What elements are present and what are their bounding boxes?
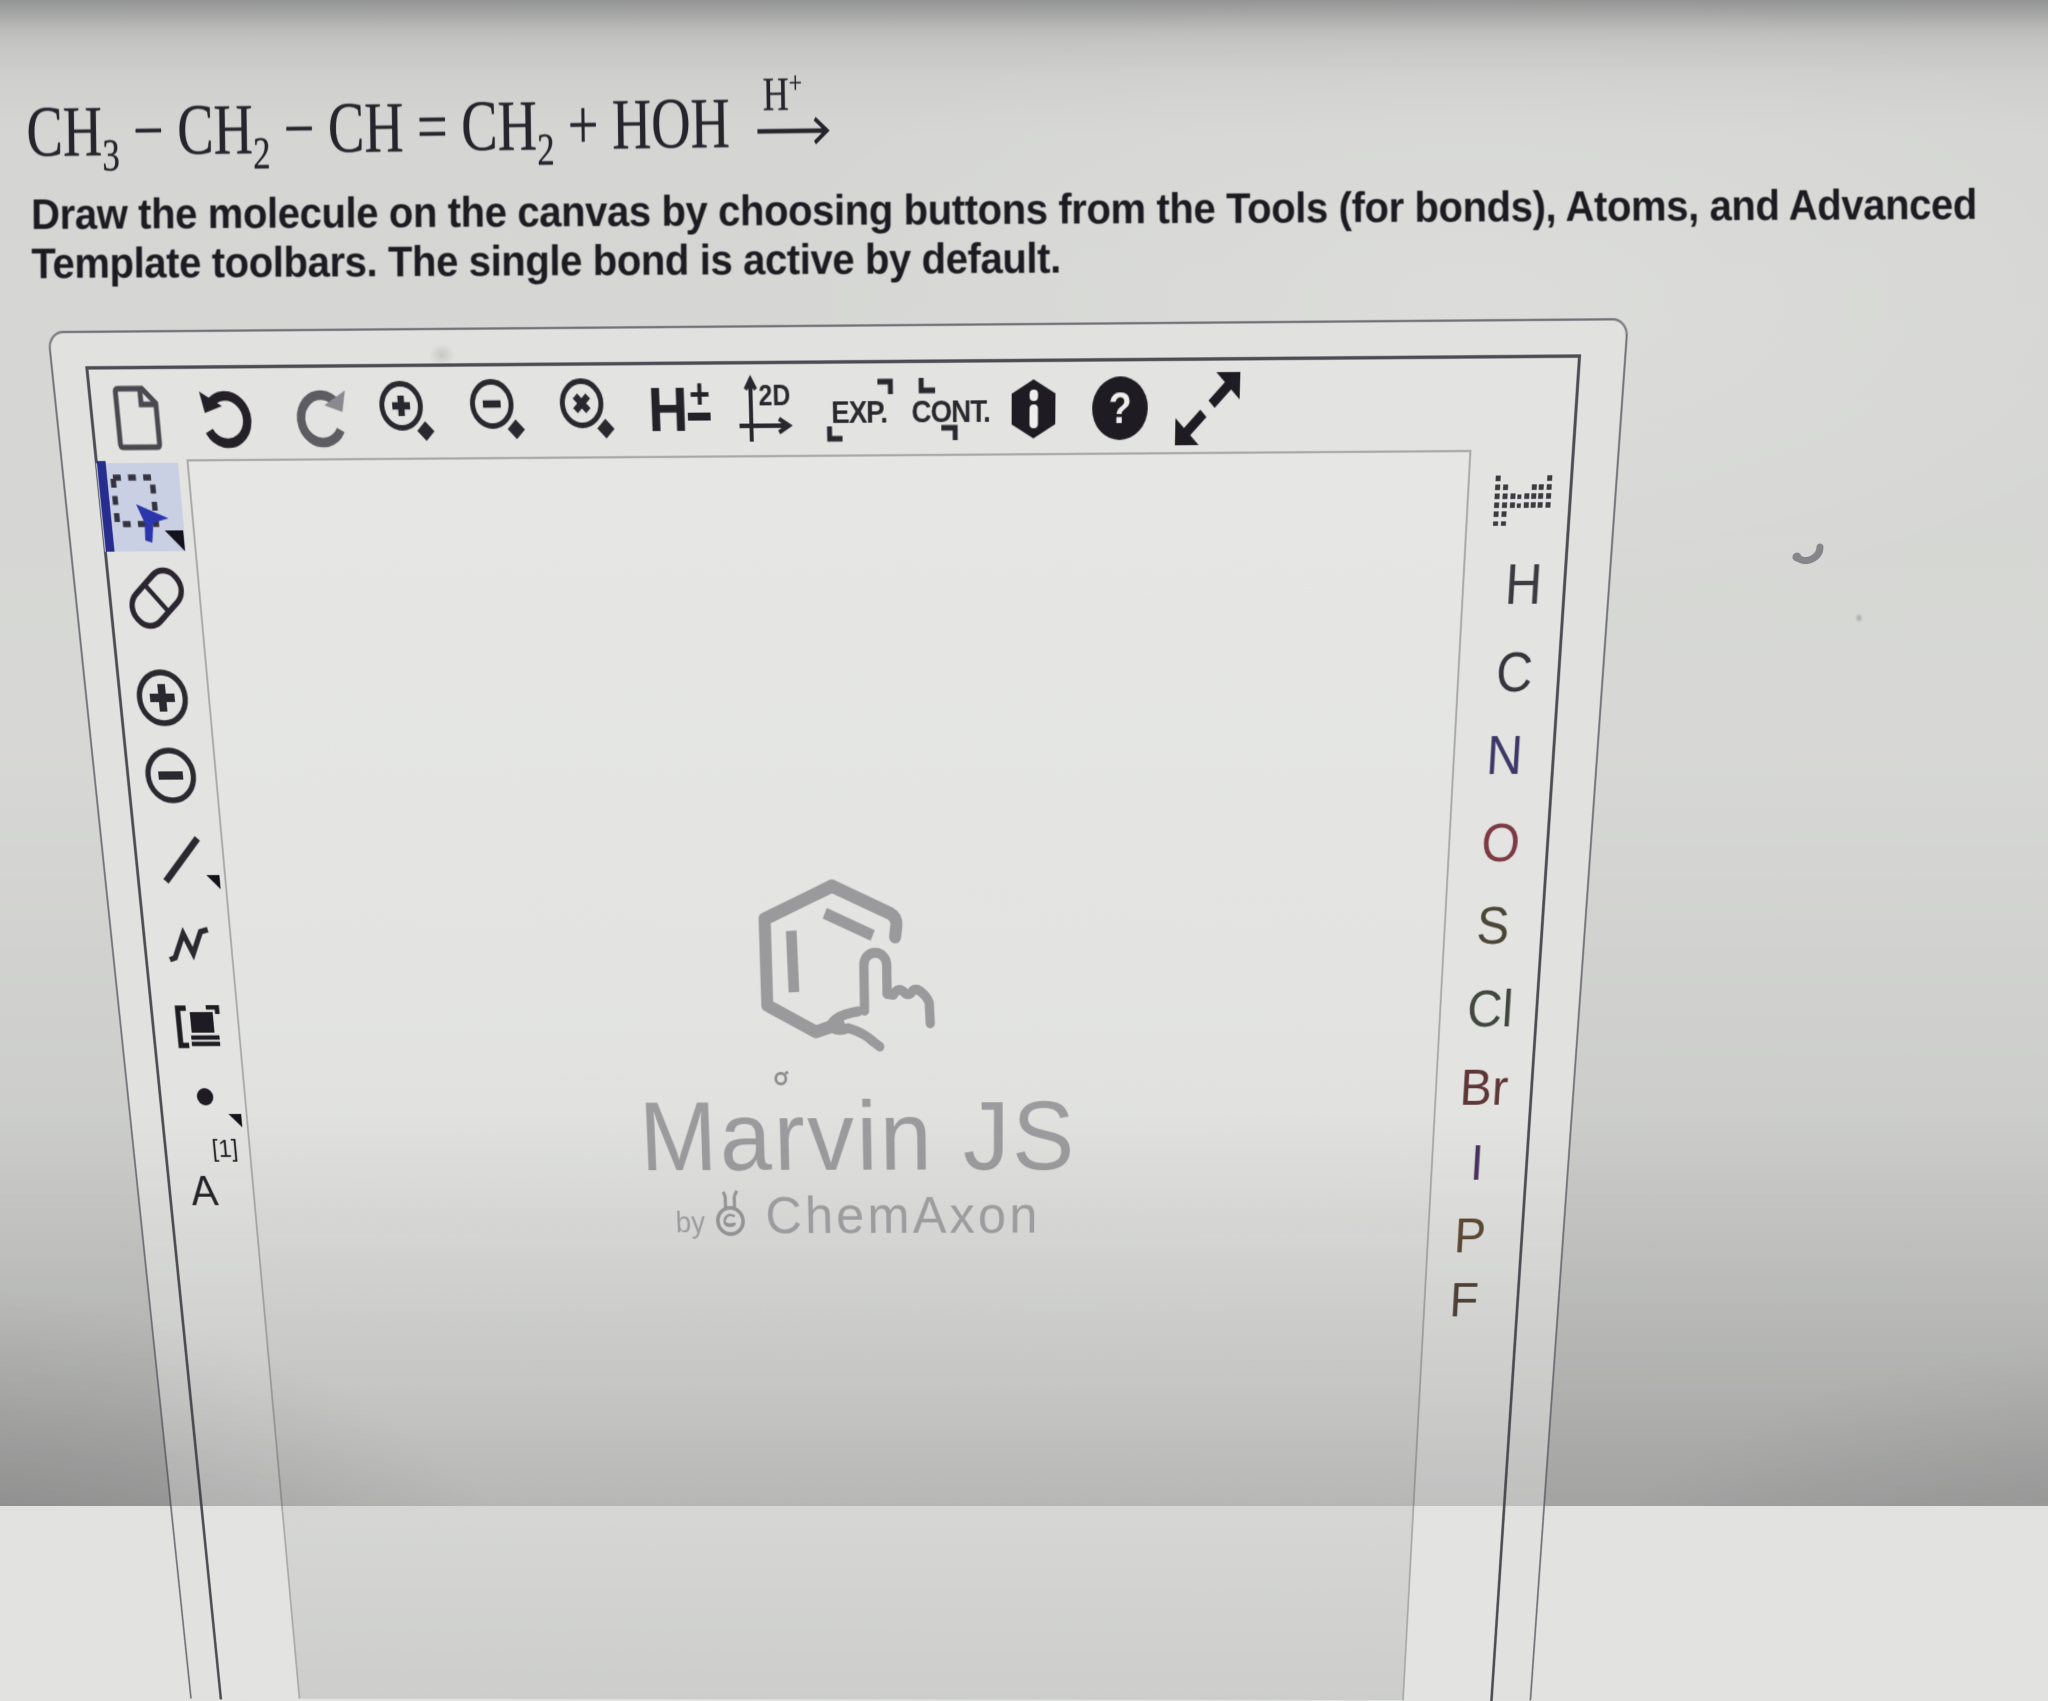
svg-text:2D: 2D [758,379,790,411]
svg-text:?: ? [1108,384,1132,433]
